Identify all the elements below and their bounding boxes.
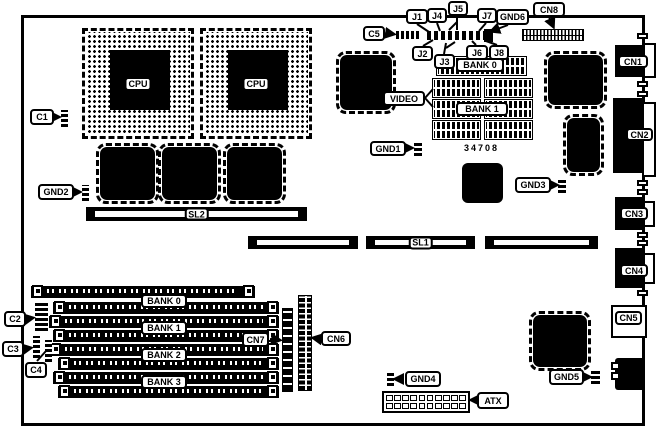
cn2-label: CN2 <box>626 128 653 141</box>
c5-label: C5 <box>363 26 385 41</box>
gnd6-label: GND6 <box>496 9 529 25</box>
atx-label: ATX <box>477 392 509 409</box>
cn8-label: CN8 <box>533 2 565 17</box>
simm-bank1-label: BANK 1 <box>141 321 187 335</box>
gnd3-label: GND3 <box>515 177 551 193</box>
gnd1-label: GND1 <box>370 141 406 156</box>
j2-label: J2 <box>412 46 433 61</box>
j7-label: J7 <box>477 8 497 23</box>
vram-bank1-label: BANK 1 <box>456 102 508 116</box>
c4-label: C4 <box>25 362 47 378</box>
cn3-label: CN3 <box>620 207 648 220</box>
cn6-label: CN6 <box>321 331 351 346</box>
c1-label: C1 <box>30 109 54 125</box>
cn4-label: CN4 <box>620 264 648 277</box>
cn1-label: CN1 <box>618 55 648 68</box>
callout-lines <box>0 0 658 432</box>
video-label: VIDEO <box>383 91 425 106</box>
simm-bank3-label: BANK 3 <box>141 375 187 389</box>
c2-label: C2 <box>4 311 26 327</box>
simm-bank0-label: BANK 0 <box>141 294 187 308</box>
gnd4-label: GND4 <box>405 371 441 387</box>
j4-label: J4 <box>427 8 447 23</box>
j3-label: J3 <box>434 54 455 69</box>
motherboard-diagram: CPU CPU C1 GND2 SL2 SL1 C5 J1 J4 J5 J7 G… <box>0 0 658 432</box>
gnd2-label: GND2 <box>38 184 74 200</box>
c3-label: C3 <box>2 341 24 357</box>
part-number: 34708 <box>464 143 499 153</box>
gnd5-label: GND5 <box>549 369 584 385</box>
vram-bank0-label: BANK 0 <box>456 58 504 72</box>
cn7-label: CN7 <box>242 332 269 347</box>
simm-bank2-label: BANK 2 <box>141 348 187 362</box>
cn5-label: CN5 <box>615 311 642 325</box>
j1-label: J1 <box>406 9 428 24</box>
j5-label: J5 <box>448 1 468 16</box>
